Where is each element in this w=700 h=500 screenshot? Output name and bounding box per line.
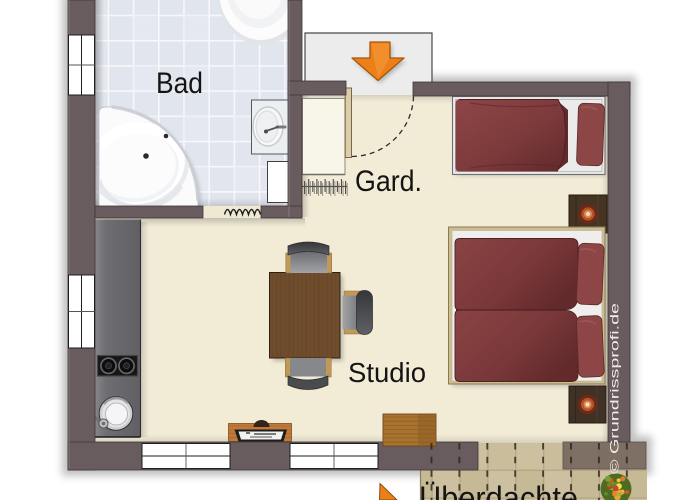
svg-text:Überdachte: Überdachte: [419, 480, 578, 500]
svg-text:Gard.: Gard.: [355, 165, 422, 198]
svg-text:Bad: Bad: [156, 67, 203, 100]
svg-text:Studio: Studio: [348, 357, 426, 388]
svg-text:© Grundrissprofi.de: © Grundrissprofi.de: [608, 302, 622, 474]
